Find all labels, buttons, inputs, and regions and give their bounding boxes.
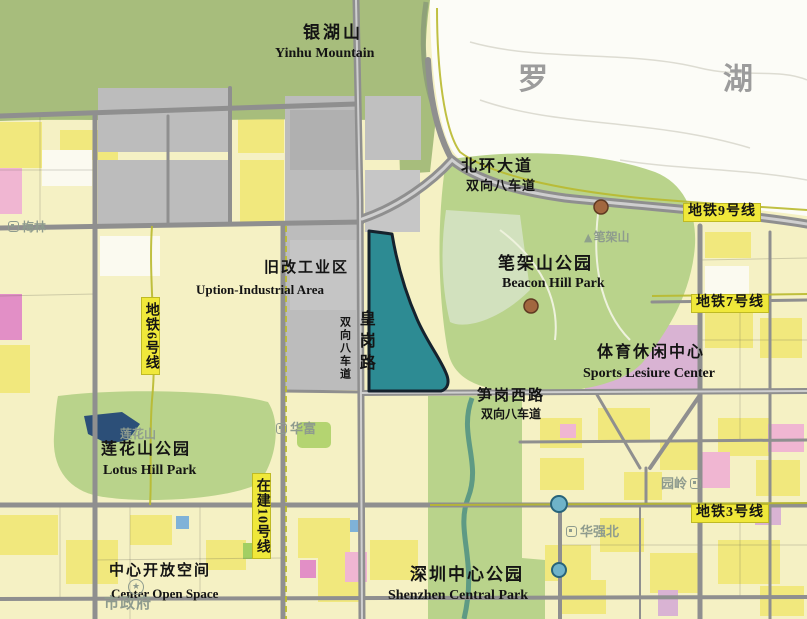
- huanggang-road-label: 皇岗路: [356, 310, 373, 376]
- sports-center-label-zh: 体育休闲中心: [597, 345, 705, 362]
- beacon-park-label-en: Beacon Hill Park: [502, 277, 605, 292]
- city-planning-map: 银湖山 Yinhu Mountain 罗湖 北环大道 双向八车道 地铁9号线 ▲…: [0, 0, 807, 619]
- bijiashan-peak-text: 笔架山: [593, 230, 629, 244]
- luohu-district-label: 罗湖: [518, 64, 807, 96]
- metro-line-10-label: 在建10号线: [252, 473, 271, 559]
- metro-line-9-label: 地铁9号线: [683, 203, 761, 222]
- uption-area-label-en: Uption-Industrial Area: [196, 283, 324, 297]
- metro-station-icon: [690, 478, 701, 489]
- government-star-icon: ★: [128, 579, 144, 595]
- beacon-park-label-zh: 笔架山公园: [498, 255, 593, 273]
- metro-station-icon: [566, 526, 577, 537]
- brown-marker-park: [524, 299, 538, 313]
- yinhu-mountain-label-zh: 银湖山: [303, 24, 363, 42]
- station-circle-south: [552, 563, 566, 577]
- huaqiangbei-station-text: 华强北: [580, 524, 619, 539]
- huaqiangbei-station-label: 华强北: [566, 525, 619, 539]
- bijiashan-peak-label: ▲笔架山: [584, 231, 629, 244]
- sungang-road-label: 笋岗西路: [477, 389, 545, 405]
- center-open-space-label-zh: 中心开放空间: [109, 564, 211, 580]
- metro-line-6-label: 地铁6号线: [141, 297, 160, 375]
- huafu-station-text: 华富: [290, 421, 316, 436]
- yuanling-station-text: 园岭: [661, 476, 687, 491]
- central-park-label-en: Shenzhen Central Park: [388, 589, 528, 604]
- beihuan-avenue-label: 北环大道: [461, 159, 533, 176]
- lotus-park-label-zh: 莲花山公园: [101, 442, 191, 459]
- huafu-station-label: 华富: [276, 422, 316, 436]
- meilin-station-label: 梅林: [8, 221, 46, 234]
- sports-center-label-en: Sports Lesiure Center: [583, 367, 715, 382]
- lianhuashan-peak-label: 莲花山: [120, 428, 156, 441]
- metro-line-7-label: 地铁7号线: [691, 294, 769, 313]
- yinhu-mountain-label-en: Yinhu Mountain: [275, 47, 374, 62]
- central-park-label-zh: 深圳中心公园: [410, 566, 524, 584]
- city-hall-label: 市政府: [104, 597, 152, 613]
- uption-area-label-zh: 旧改工业区: [264, 261, 349, 277]
- mountain-peak-icon: ▲: [584, 231, 592, 244]
- huanggang-road-sublabel: 双向八车道: [338, 316, 350, 381]
- station-circle-sungang: [551, 496, 567, 512]
- metro-station-icon: [276, 423, 287, 434]
- meilin-station-text: 梅林: [22, 220, 46, 234]
- metro-line-3-label: 地铁3号线: [691, 504, 769, 523]
- brown-marker-north: [594, 200, 608, 214]
- lotus-park-label-en: Lotus Hill Park: [103, 464, 196, 479]
- metro-station-icon: [8, 221, 19, 232]
- yuanling-station-label: 园岭: [661, 477, 701, 491]
- beihuan-avenue-sublabel: 双向八车道: [466, 179, 536, 193]
- sungang-road-sublabel: 双向八车道: [481, 408, 541, 421]
